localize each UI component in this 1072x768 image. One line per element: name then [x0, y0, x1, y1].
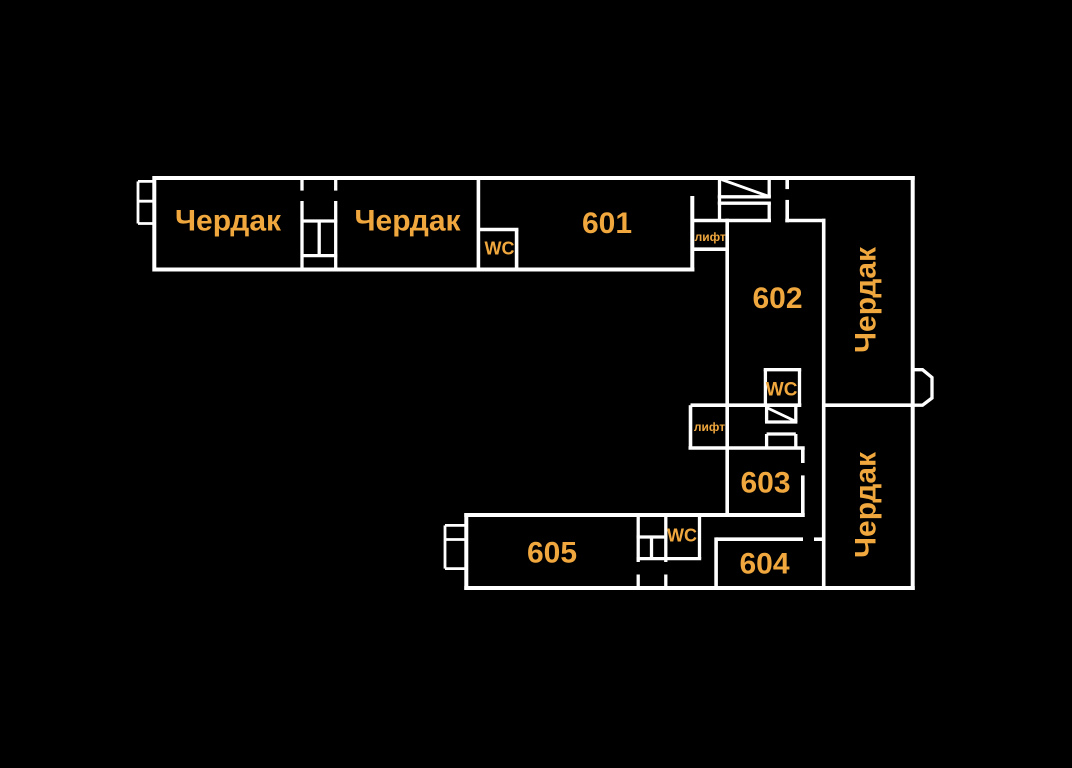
svg-text:601: 601 — [582, 207, 632, 240]
svg-text:603: 603 — [740, 467, 790, 500]
svg-text:лифт: лифт — [694, 420, 725, 434]
svg-text:WC: WC — [667, 526, 697, 546]
svg-text:Чердак: Чердак — [850, 451, 883, 558]
svg-text:Чердак: Чердак — [354, 205, 461, 238]
svg-text:602: 602 — [752, 282, 802, 315]
svg-text:Чердак: Чердак — [175, 205, 282, 238]
svg-text:Чердак: Чердак — [850, 246, 883, 353]
svg-text:605: 605 — [527, 537, 577, 570]
svg-text:604: 604 — [739, 548, 789, 581]
svg-text:лифт: лифт — [695, 230, 726, 244]
svg-text:WC: WC — [485, 239, 515, 259]
svg-text:WC: WC — [766, 379, 798, 400]
